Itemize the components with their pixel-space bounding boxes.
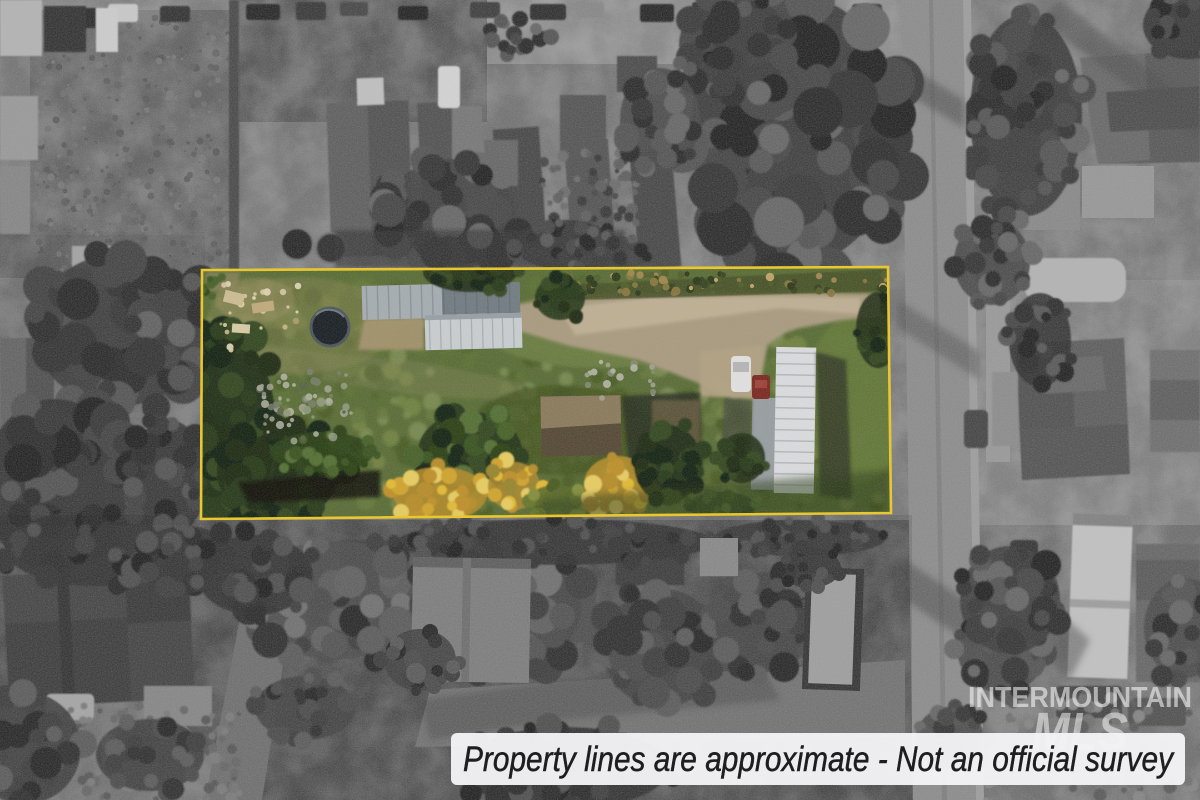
- svg-text:Property lines are approximate: Property lines are approximate - Not an …: [463, 740, 1175, 779]
